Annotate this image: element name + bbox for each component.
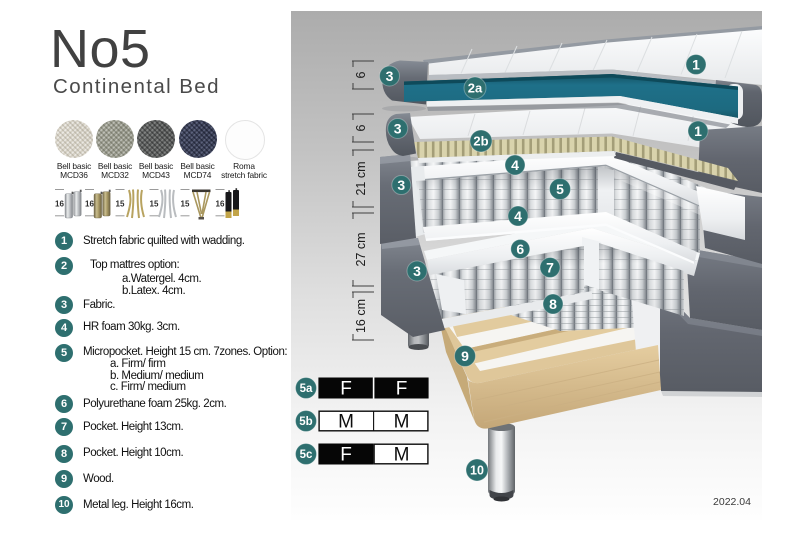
svg-text:3: 3	[394, 121, 402, 137]
svg-text:F: F	[340, 379, 352, 400]
svg-text:2b: 2b	[473, 134, 488, 149]
svg-text:4: 4	[511, 157, 519, 173]
svg-text:2a: 2a	[468, 81, 483, 96]
svg-text:F: F	[340, 445, 352, 466]
svg-text:6: 6	[354, 124, 368, 131]
svg-text:8: 8	[549, 296, 557, 312]
svg-text:10: 10	[470, 464, 484, 478]
svg-text:F: F	[396, 379, 408, 400]
svg-text:6: 6	[354, 71, 368, 78]
svg-text:27 cm: 27 cm	[354, 232, 368, 266]
svg-text:3: 3	[413, 263, 421, 279]
svg-text:5b: 5b	[299, 416, 312, 428]
svg-text:6: 6	[516, 241, 524, 257]
svg-text:3: 3	[386, 68, 394, 84]
svg-text:7: 7	[546, 260, 554, 276]
svg-text:1: 1	[692, 57, 700, 73]
svg-text:M: M	[394, 412, 410, 433]
svg-text:21 cm: 21 cm	[354, 161, 368, 195]
svg-text:5a: 5a	[300, 383, 313, 395]
svg-text:4: 4	[514, 208, 522, 224]
svg-text:1: 1	[694, 123, 702, 139]
svg-text:9: 9	[461, 348, 469, 364]
svg-text:M: M	[338, 412, 354, 433]
svg-text:M: M	[394, 445, 410, 466]
svg-text:2022.04: 2022.04	[713, 496, 751, 508]
svg-text:5c: 5c	[300, 449, 313, 461]
svg-text:16 cm: 16 cm	[354, 299, 368, 333]
svg-text:5: 5	[556, 181, 564, 197]
svg-text:3: 3	[397, 177, 405, 193]
